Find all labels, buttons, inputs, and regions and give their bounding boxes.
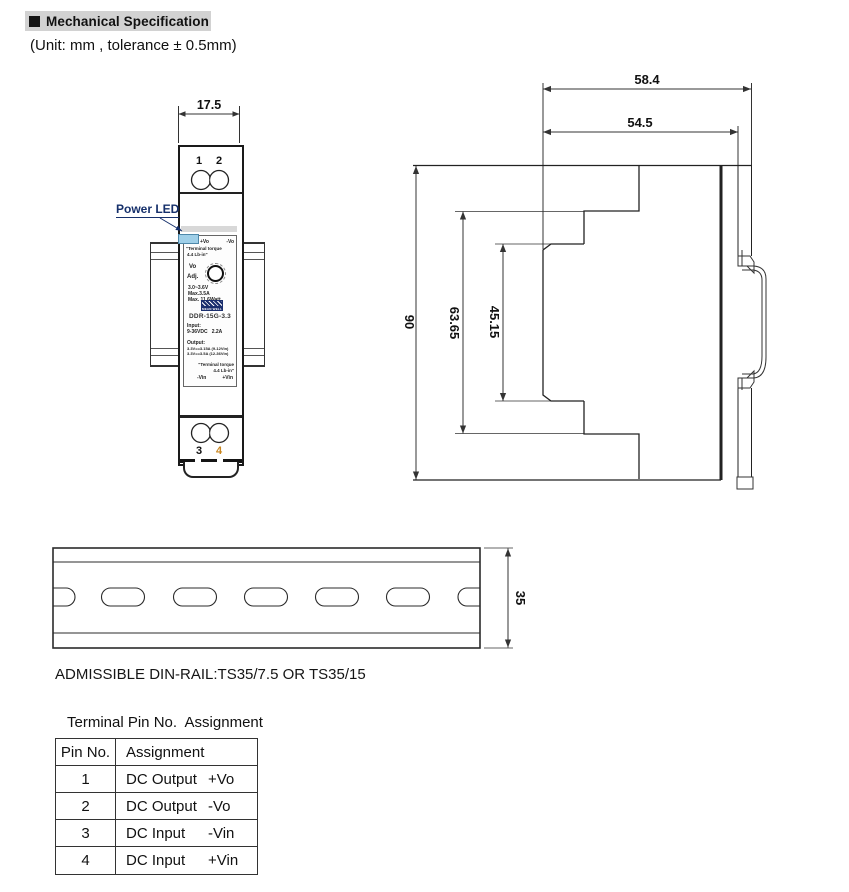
side-view-dim-labels: 58.4 54.5 90 63.65 45.15 [402, 72, 660, 339]
torque-bottom-2: 4.4 Lb-in" [192, 369, 234, 374]
vo-text: Vo [189, 264, 196, 270]
vin-plus: +Vin [222, 376, 233, 381]
table-row: 3 DC Input -Vin [56, 820, 257, 847]
assignment-cell: DC Input -Vin [116, 820, 257, 846]
dim-90: 90 [402, 315, 417, 329]
terminal-label-4: 4 [216, 445, 222, 457]
assignment-cell: DC Input +Vin [116, 847, 257, 874]
adj-text: Adj. [187, 274, 198, 280]
assignment-polarity: +Vin [208, 852, 238, 869]
assignment-polarity: +Vo [208, 771, 234, 788]
dim-63-65: 63.65 [447, 307, 462, 340]
unit-note: (Unit: mm , tolerance ± 0.5mm) [30, 37, 237, 54]
vo-plus: +Vo [200, 240, 209, 245]
case-divider-top [180, 192, 242, 194]
pin-cell: 3 [56, 820, 116, 846]
rail-dimension [484, 548, 513, 648]
mechanical-specification-page: Mechanical Specification (Unit: mm , tol… [0, 0, 849, 892]
terminal-hole-bottom [188, 421, 232, 445]
side-view-body-outline [413, 166, 752, 481]
torque-bottom-1: "Terminal torque [192, 363, 234, 368]
rail-outline [53, 548, 480, 648]
table-row: 4 DC Input +Vin [56, 847, 257, 874]
terminal-label-1: 1 [196, 155, 202, 167]
dim-58-4: 58.4 [634, 72, 660, 87]
assignment-device: DC Input [126, 825, 208, 842]
vo-minus: -Vo [226, 240, 234, 245]
assignment-cell: DC Output +Vo [116, 766, 257, 792]
terminal-hole-top [188, 168, 232, 192]
pin-cell: 4 [56, 847, 116, 874]
dim-54-5: 54.5 [627, 115, 652, 130]
side-view-drawing: 58.4 54.5 90 63.65 45.15 [390, 65, 795, 505]
brand-logo: MEAN WELL [201, 300, 223, 311]
output-spec-2: 3.3V==3.5A (12-36Vin) [187, 352, 228, 356]
page-title: Mechanical Specification [46, 14, 209, 29]
header-pin-no: Pin No. [56, 739, 116, 765]
vin-terminal-row: -Vin +Vin [197, 376, 233, 381]
assignment-polarity: -Vo [208, 798, 231, 815]
product-label: +Vo -Vo "Terminal torque 4.4 Lb-in" Vo A… [183, 235, 237, 387]
header-assignment: Assignment [116, 739, 257, 765]
dim-width-arrow-line [174, 108, 244, 118]
case-divider-bottom [180, 415, 242, 418]
table-header-row: Pin No. Assignment [56, 739, 257, 766]
power-supply-front-body: 1 2 +Vo -Vo "Terminal torque 4.4 Lb-in" … [178, 145, 244, 466]
torque-top-2: 4.4 Lb-in" [187, 253, 208, 258]
din-rail-drawing: 35 [40, 540, 545, 658]
section-header: Mechanical Specification [25, 11, 211, 31]
power-led-callout-arrow [140, 210, 200, 240]
brand-name: MEAN WELL [201, 307, 223, 311]
vo-terminal-row: +Vo -Vo [200, 240, 234, 245]
admissible-rail-note: ADMISSIBLE DIN-RAIL:TS35/7.5 OR TS35/15 [55, 666, 366, 683]
bullet-square-icon [29, 16, 40, 27]
assignment-device: DC Output [126, 798, 208, 815]
assignment-device: DC Output [126, 771, 208, 788]
input-spec: 9-36VDC 2.2A [187, 330, 222, 335]
vin-minus: -Vin [197, 376, 206, 381]
pin-cell: 2 [56, 793, 116, 819]
vo-adjust-potentiometer [207, 265, 224, 282]
model-number: DDR-15G-3.3 [185, 314, 235, 321]
terminal-label-2: 2 [216, 155, 222, 167]
table-row: 2 DC Output -Vo [56, 793, 257, 820]
din-rail-front-left [150, 242, 178, 367]
dim-45-15: 45.15 [487, 306, 502, 339]
dim-35: 35 [513, 591, 528, 605]
brand-logo-stripes [201, 300, 223, 307]
assignment-device: DC Input [126, 852, 208, 869]
dim-extension-left [178, 106, 179, 143]
pin-assignment-table: Pin No. Assignment 1 DC Output +Vo 2 DC … [55, 738, 258, 875]
pin-cell: 1 [56, 766, 116, 792]
pin-table-title: Terminal Pin No. Assignment [67, 714, 263, 731]
dim-extension-right [239, 106, 240, 143]
torque-top-1: "Terminal torque [186, 247, 222, 252]
terminal-label-3: 3 [196, 445, 202, 457]
din-clip-bottom-cap [183, 462, 239, 478]
assignment-polarity: -Vin [208, 825, 234, 842]
table-row: 1 DC Output +Vo [56, 766, 257, 793]
assignment-cell: DC Output -Vo [116, 793, 257, 819]
